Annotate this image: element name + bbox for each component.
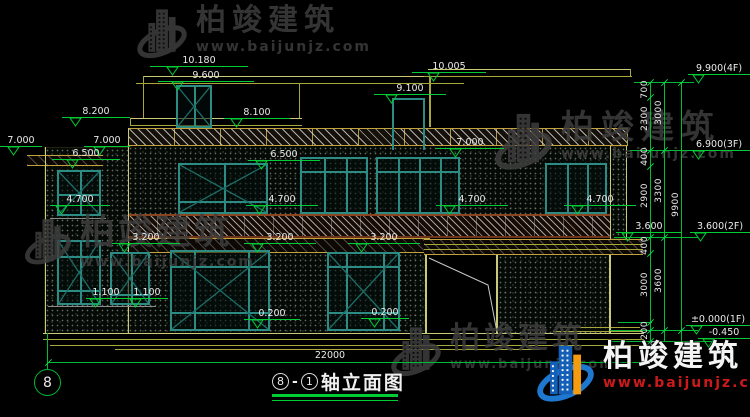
axis-bubble-8: 8: [34, 369, 61, 396]
vertical-dim-label: 200: [640, 321, 650, 340]
level-label: 8.200: [62, 106, 130, 117]
level-label: 7.000: [84, 135, 130, 146]
level-triangle-icon: [7, 147, 20, 156]
level-triangle-icon: [692, 75, 705, 84]
vertical-dim-label: 3300: [654, 178, 664, 203]
window-mullion: [398, 159, 400, 212]
level-triangle-icon: [443, 206, 456, 215]
level-marker: 3.200: [112, 232, 180, 254]
elevation-drawing-canvas: 10.1809.60010.0059.1008.2008.1007.0007.0…: [0, 0, 750, 417]
level-triangle-icon: [66, 160, 79, 169]
pergola-member: [423, 98, 425, 150]
building-line: [424, 249, 643, 250]
level-label: 9.600: [158, 70, 254, 81]
building-line: [143, 76, 144, 83]
dim-line: [681, 82, 682, 342]
level-line: [84, 146, 130, 147]
level-label: 6.900(3F): [688, 139, 750, 150]
level-triangle-icon: [692, 151, 705, 160]
dim-line: [610, 330, 698, 331]
level-label: 4.700: [436, 194, 508, 205]
level-label: 1.100: [86, 287, 126, 298]
level-label: 9.100: [374, 83, 446, 94]
level-label: 3.200: [112, 232, 180, 243]
building-line: [424, 244, 643, 245]
level-triangle-icon: [368, 319, 381, 328]
level-line: [412, 72, 486, 73]
level-marker: 6.900(3F): [688, 139, 750, 161]
level-label: 1.100: [126, 287, 168, 298]
level-line: [150, 66, 248, 67]
overall-dim-label: 22000: [300, 350, 360, 361]
level-marker: 4.700: [436, 194, 508, 216]
level-label: 6.500: [52, 148, 120, 159]
level-marker: 3.600(2F): [690, 221, 750, 243]
level-marker: 4.700: [50, 194, 110, 216]
level-triangle-icon: [230, 119, 243, 128]
vertical-dim-label: 2900: [640, 183, 650, 208]
building-line: [143, 84, 144, 118]
level-triangle-icon: [255, 161, 268, 170]
building-line: [299, 84, 300, 118]
level-triangle-icon: [118, 244, 131, 253]
level-label: 4.700: [50, 194, 110, 205]
title-dash: -: [292, 374, 298, 390]
window-mullion: [378, 171, 458, 173]
vertical-dim-label: 700: [640, 80, 650, 99]
building-line: [130, 118, 131, 125]
level-triangle-icon: [355, 244, 368, 253]
level-marker: 9.900(4F): [688, 63, 750, 85]
title-name: 轴立面图: [321, 368, 405, 395]
watermark-logo-icon: [536, 342, 595, 406]
watermark-logo-icon: [136, 6, 188, 62]
pergola-member: [392, 98, 394, 150]
building-line: [630, 69, 631, 77]
level-triangle-icon: [385, 95, 398, 104]
vertical-dim-label: 3600: [654, 268, 664, 293]
level-marker: 7.000: [0, 135, 42, 157]
drawing-title: 8 - 1 轴立面图: [272, 368, 405, 395]
level-triangle-icon: [251, 244, 264, 253]
building-line: [609, 255, 611, 333]
level-marker: 10.005: [412, 61, 486, 83]
watermark-logo-icon: [24, 216, 72, 268]
level-label: 7.000: [436, 137, 504, 148]
window-mullion: [302, 171, 366, 173]
level-marker: 0.200: [361, 307, 409, 329]
level-marker: 6.500: [52, 148, 120, 170]
level-triangle-icon: [251, 320, 264, 329]
title-underline: [272, 394, 398, 397]
watermark-url: www.baijunjz.com: [196, 39, 371, 55]
watermark-brand: 柏竣建筑: [603, 342, 750, 373]
watermark-url: www.baijunjz.com: [80, 254, 255, 270]
dim-line: [664, 82, 665, 342]
vertical-dim-label: 2300: [640, 106, 650, 131]
watermark: 柏竣建筑www.baijunjz.com: [136, 6, 371, 62]
level-marker: 4.700: [564, 194, 636, 216]
level-label: 7.000: [0, 135, 42, 146]
level-marker: 8.100: [224, 107, 290, 129]
level-label: 4.700: [246, 194, 318, 205]
level-triangle-icon: [171, 82, 184, 91]
level-triangle-icon: [621, 233, 634, 242]
level-marker: 7.000: [436, 137, 504, 159]
level-triangle-icon: [89, 299, 102, 308]
level-triangle-icon: [129, 299, 142, 308]
level-marker: 9.600: [158, 70, 254, 92]
title-axis-from: 8: [272, 373, 289, 390]
level-label: 6.500: [248, 149, 320, 160]
watermark: 柏竣建筑www.baijunjz.com: [536, 342, 750, 406]
watermark-text: 柏竣建筑www.baijunjz.com: [603, 342, 750, 391]
level-label: 8.100: [224, 107, 290, 118]
vertical-dim-label: 3000: [640, 272, 650, 297]
level-label: 9.900(4F): [688, 63, 750, 74]
level-triangle-icon: [571, 206, 584, 215]
level-triangle-icon: [694, 233, 707, 242]
level-label: 10.180: [150, 55, 248, 66]
level-marker: 0.200: [244, 308, 300, 330]
window-mullion: [324, 159, 326, 212]
level-triangle-icon: [55, 206, 68, 215]
level-label: 4.700: [564, 194, 636, 205]
level-marker: 8.200: [62, 106, 130, 128]
level-line: [436, 148, 504, 149]
vertical-dim-label: 9900: [671, 192, 681, 217]
level-label: ±0.000(1F): [686, 314, 750, 325]
level-marker: 6.500: [248, 149, 320, 171]
level-marker: 1.100: [126, 287, 168, 309]
title-axis-to: 1: [301, 373, 318, 390]
level-marker: 3.200: [348, 232, 420, 254]
level-triangle-icon: [427, 73, 440, 82]
window-mullion: [346, 159, 348, 212]
level-triangle-icon: [253, 206, 266, 215]
level-label: 3.200: [244, 232, 316, 243]
level-triangle-icon: [449, 149, 462, 158]
dim-line: [650, 82, 651, 342]
level-marker: 1.100: [86, 287, 126, 309]
level-label: 3.200: [348, 232, 420, 243]
title-underline-thin: [272, 400, 398, 401]
level-label: 0.200: [244, 308, 300, 319]
level-marker: 4.700: [246, 194, 318, 216]
vertical-dim-label: 3000: [654, 100, 664, 125]
level-marker: 9.100: [374, 83, 446, 105]
level-label: -0.450: [698, 327, 750, 338]
level-label: 10.005: [412, 61, 486, 72]
vertical-dim-label: 400: [640, 147, 650, 166]
level-marker: 3.200: [244, 232, 316, 254]
vertical-dim-label: 400: [640, 236, 650, 255]
garage-roof-band: [424, 239, 643, 255]
level-label: 0.200: [361, 307, 409, 318]
level-label: 3.600: [616, 221, 682, 232]
watermark-text: 柏竣建筑www.baijunjz.com: [196, 6, 371, 55]
watermark-url: www.baijunjz.com: [603, 375, 750, 391]
level-line: [52, 159, 120, 160]
window-mullion: [419, 159, 421, 212]
window-brace-icon: [178, 87, 210, 126]
level-label: 3.600(2F): [690, 221, 750, 232]
watermark-brand: 柏竣建筑: [196, 6, 371, 37]
level-triangle-icon: [69, 118, 82, 127]
